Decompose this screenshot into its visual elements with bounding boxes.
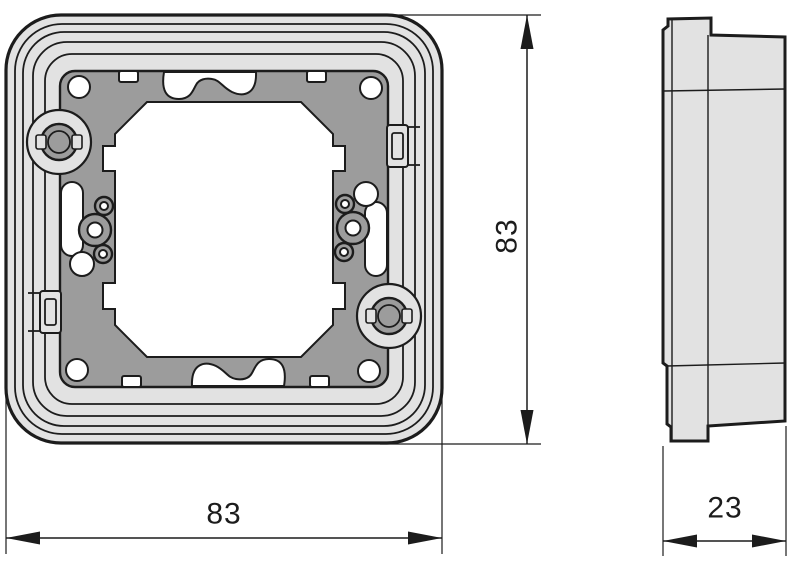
claw-pin-hole — [99, 250, 107, 258]
fixing-screw — [27, 110, 91, 174]
dimension-side-depth: 23 — [663, 426, 786, 556]
side-view — [663, 18, 785, 441]
screw-notch — [72, 135, 82, 149]
corner-cutout — [68, 76, 90, 98]
claw-pin-hole — [100, 202, 108, 210]
screw-notch — [36, 135, 46, 149]
dimension-label-side-depth: 23 — [707, 492, 742, 525]
corner-cutout — [360, 77, 382, 99]
arrowhead-left — [6, 532, 40, 545]
edge-notch — [119, 71, 138, 82]
edge-notch — [307, 71, 326, 82]
dimension-label-front-height: 83 — [491, 218, 524, 253]
technical-drawing-canvas: 83 83 23 — [0, 0, 800, 566]
claw-wheel-hole — [88, 223, 103, 238]
arrowhead-left — [663, 535, 697, 548]
arrowhead-right — [408, 532, 442, 545]
claw-slot-bulb — [70, 252, 94, 276]
dimension-label-front-width: 83 — [206, 498, 241, 531]
latch-tab-inner — [45, 299, 56, 325]
side-profile — [663, 18, 785, 441]
arrowhead-right — [752, 535, 786, 548]
claw-slot — [61, 182, 83, 256]
arrowhead-top — [521, 15, 534, 49]
module-opening — [103, 102, 345, 357]
technical-drawing: 83 83 23 — [0, 0, 800, 566]
front-view — [6, 15, 442, 443]
arrowhead-bottom — [521, 410, 534, 444]
